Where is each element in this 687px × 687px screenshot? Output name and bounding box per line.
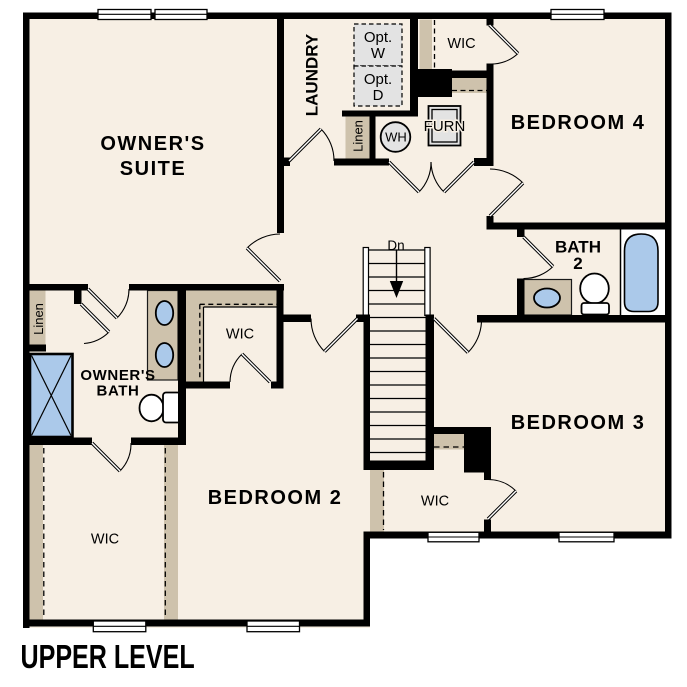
svg-text:Dn: Dn (387, 238, 404, 253)
svg-text:BEDROOM 2: BEDROOM 2 (208, 487, 343, 509)
svg-text:OWNER'S: OWNER'S (100, 133, 205, 155)
svg-text:SUITE: SUITE (120, 158, 186, 180)
svg-text:BEDROOM 3: BEDROOM 3 (511, 412, 646, 434)
svg-text:OWNER'S: OWNER'S (80, 367, 155, 384)
svg-text:WH: WH (385, 130, 407, 145)
svg-text:Opt.: Opt. (364, 71, 392, 88)
svg-text:FURN: FURN (424, 118, 466, 135)
svg-text:Linen: Linen (351, 120, 366, 152)
svg-text:D: D (373, 87, 384, 104)
svg-text:UPPER LEVEL: UPPER LEVEL (21, 639, 195, 676)
svg-text:Opt.: Opt. (364, 29, 392, 46)
svg-text:WIC: WIC (447, 36, 475, 52)
svg-text:2: 2 (573, 254, 582, 273)
svg-text:WIC: WIC (421, 494, 449, 510)
svg-text:WIC: WIC (226, 327, 254, 343)
svg-text:LAUNDRY: LAUNDRY (303, 33, 322, 116)
svg-text:BEDROOM 4: BEDROOM 4 (511, 112, 646, 134)
svg-text:BATH: BATH (97, 383, 140, 400)
svg-text:Linen: Linen (31, 303, 46, 335)
svg-text:W: W (371, 45, 386, 62)
svg-text:WIC: WIC (91, 532, 119, 548)
